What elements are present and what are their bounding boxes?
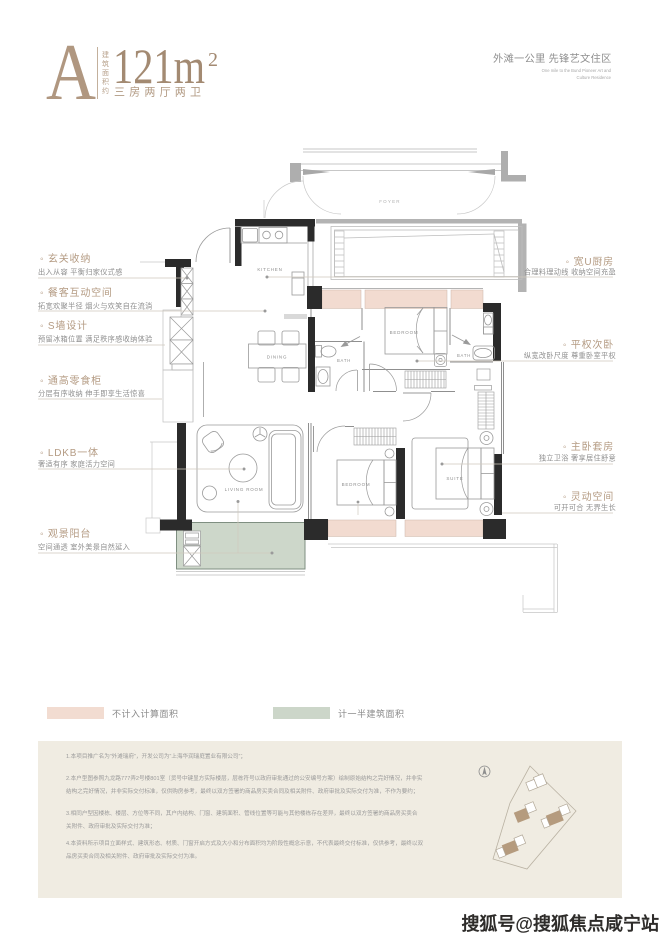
svg-text:计一半建筑面积: 计一半建筑面积 (338, 708, 405, 719)
svg-text:可开可合 无界生长: 可开可合 无界生长 (554, 503, 616, 512)
svg-text:积: 积 (102, 77, 109, 86)
svg-text:三房两厅两卫: 三房两厅两卫 (114, 86, 205, 99)
svg-text:FOYER: FOYER (379, 199, 401, 204)
svg-text:BEDROOM: BEDROOM (390, 330, 419, 335)
svg-text:Culture Residence: Culture Residence (577, 75, 612, 80)
svg-text:◦ 主卧套房: ◦ 主卧套房 (563, 440, 614, 453)
svg-text:奢适有序 家庭活力空间: 奢适有序 家庭活力空间 (38, 460, 115, 469)
svg-text:BATH: BATH (337, 358, 351, 363)
svg-text:独立卫浴 奢享居住舒意: 独立卫浴 奢享居住舒意 (539, 454, 616, 463)
svg-text:预留冰箱位置 满足秩序感收纳体验: 预留冰箱位置 满足秩序感收纳体验 (38, 335, 153, 344)
svg-text:◦ LDKB一体: ◦ LDKB一体 (40, 447, 99, 459)
svg-text:DINING: DINING (267, 355, 288, 360)
svg-text:◦ 通高零食柜: ◦ 通高零食柜 (40, 374, 102, 387)
svg-text:BATH: BATH (457, 353, 471, 358)
svg-text:◦ 玄关收纳: ◦ 玄关收纳 (40, 252, 91, 265)
svg-text:结构之完好情况，并非实际交付标准，仅供购房参考，最终以双方签: 结构之完好情况，并非实际交付标准，仅供购房参考，最终以双方签署的商品房买卖合同及… (66, 787, 418, 795)
svg-text:不计入计算面积: 不计入计算面积 (112, 708, 179, 719)
svg-text:筑: 筑 (102, 59, 109, 68)
svg-text:2: 2 (208, 49, 218, 71)
svg-text:◦ 观景阳台: ◦ 观景阳台 (40, 527, 91, 540)
svg-text:外滩一公里 先锋艺文住区: 外滩一公里 先锋艺文住区 (493, 52, 612, 65)
svg-text:搜狐号@搜狐焦点咸宁站: 搜狐号@搜狐焦点咸宁站 (461, 913, 659, 934)
svg-text:关附件、政府审批及实际交付为准；: 关附件、政府审批及实际交付为准； (66, 822, 156, 830)
svg-text:建: 建 (102, 50, 109, 59)
svg-text:出入从容 平衡归家仪式感: 出入从容 平衡归家仪式感 (38, 268, 123, 277)
svg-text:约: 约 (102, 86, 109, 95)
svg-text:LIVING ROOM: LIVING ROOM (225, 487, 264, 492)
svg-text:◦ 餐客互动空间: ◦ 餐客互动空间 (40, 286, 113, 299)
svg-text:拓宽欢聚半径 烟火与欢笑自在流淌: 拓宽欢聚半径 烟火与欢笑自在流淌 (38, 302, 153, 311)
svg-text:4.本资料所示项目立面样式、建筑形态、材质、门窗开启方式及大: 4.本资料所示项目立面样式、建筑形态、材质、门窗开启方式及大小和分布面积均为阶段… (66, 839, 423, 847)
svg-text:◦ 灵动空间: ◦ 灵动空间 (563, 490, 614, 503)
svg-text:3.相同户型因楼栋、楼层、方位等不同，其户内结构、门窗、建筑: 3.相同户型因楼栋、楼层、方位等不同，其户内结构、门窗、建筑面积、管线位置等可能… (66, 809, 418, 817)
svg-text:One mile to the Bund Pioneer A: One mile to the Bund Pioneer Art and (542, 68, 612, 73)
svg-text:KITCHEN: KITCHEN (257, 267, 282, 272)
svg-text:2.本户型图参照九龙路777弄2号楼801室（货号中键显方实: 2.本户型图参照九龙路777弄2号楼801室（货号中键显方实际楼层，层栋符号以政… (66, 774, 423, 782)
svg-text:A: A (46, 29, 96, 117)
svg-text:1.本项目推广名为“外滩瑞府”，开发公司为“上海华润瑞庭置业: 1.本项目推广名为“外滩瑞府”，开发公司为“上海华润瑞庭置业有限公司”； (66, 752, 246, 760)
svg-text:合理料理动线 收纳空间充盈: 合理料理动线 收纳空间充盈 (524, 268, 616, 277)
svg-text:◦ 宽U厨房: ◦ 宽U厨房 (566, 255, 614, 268)
svg-text:面: 面 (102, 69, 109, 77)
svg-text:◦ 平权次卧: ◦ 平权次卧 (563, 338, 614, 351)
svg-text:分层有序收纳 伸手即享生活惊喜: 分层有序收纳 伸手即享生活惊喜 (38, 389, 145, 398)
svg-text:◦ S墙设计: ◦ S墙设计 (40, 319, 88, 332)
svg-text:纵宽改卧尺度 尊重卧室平权: 纵宽改卧尺度 尊重卧室平权 (524, 351, 616, 360)
svg-text:SUITE: SUITE (446, 476, 463, 481)
svg-text:空间通透 室外美景自然延入: 空间通透 室外美景自然延入 (38, 543, 130, 552)
svg-text:品房买卖合同及相关附件、政府审批及实际交付为准。: 品房买卖合同及相关附件、政府审批及实际交付为准。 (66, 852, 200, 860)
svg-text:BEDROOM: BEDROOM (342, 482, 371, 487)
